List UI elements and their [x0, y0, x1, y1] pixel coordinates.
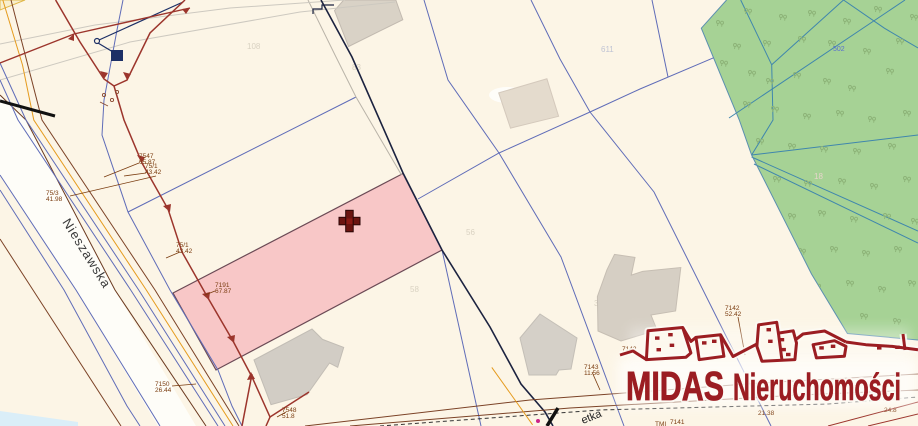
svg-text:21.38: 21.38	[758, 410, 775, 417]
svg-text:56: 56	[466, 228, 475, 237]
svg-text:7141: 7141	[670, 419, 685, 426]
svg-text:11.56: 11.56	[584, 370, 600, 377]
svg-text:51.8: 51.8	[282, 413, 295, 420]
svg-text:611: 611	[601, 45, 614, 54]
svg-text:26.44: 26.44	[155, 387, 172, 394]
svg-text:67.87: 67.87	[215, 288, 232, 295]
svg-text:52.42: 52.42	[725, 311, 742, 318]
svg-text:58: 58	[410, 285, 419, 294]
svg-text:TMI: TMI	[655, 421, 666, 426]
svg-text:41.98: 41.98	[46, 196, 63, 203]
svg-text:108: 108	[247, 42, 261, 51]
svg-text:MIDAS: MIDAS	[626, 363, 724, 409]
svg-text:502: 502	[833, 46, 845, 53]
svg-text:Nieruchomości: Nieruchomości	[733, 367, 901, 409]
svg-text:43.42: 43.42	[176, 248, 193, 255]
svg-text:43.42: 43.42	[145, 169, 162, 176]
svg-text:18: 18	[814, 172, 823, 181]
